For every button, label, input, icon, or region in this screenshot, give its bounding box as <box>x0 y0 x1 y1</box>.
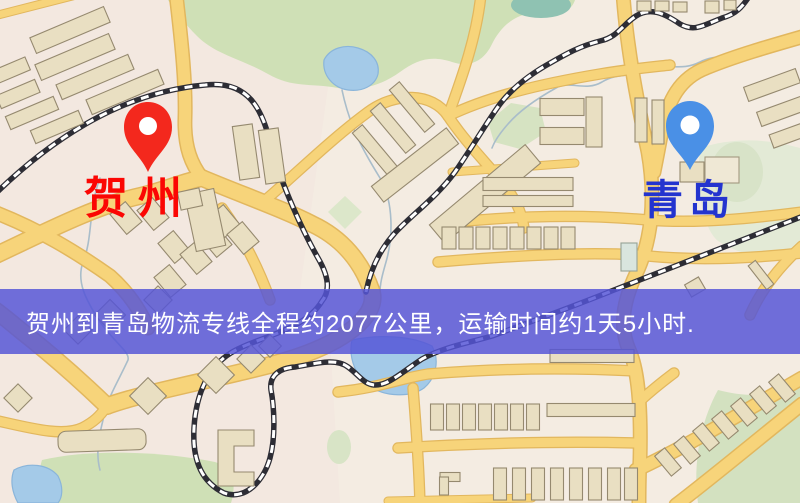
origin-city-label: 贺州 <box>84 177 192 221</box>
destination-city-label: 青岛 <box>642 180 736 221</box>
logistics-route-map: 贺州 青岛 贺州到青岛物流专线全程约2077公里，运输时间约1天5小时. <box>0 0 800 503</box>
route-info-text: 贺州到青岛物流专线全程约2077公里，运输时间约1天5小时. <box>26 304 695 339</box>
route-info-banner: 贺州到青岛物流专线全程约2077公里，运输时间约1天5小时. <box>0 289 800 354</box>
map-canvas <box>0 0 800 503</box>
